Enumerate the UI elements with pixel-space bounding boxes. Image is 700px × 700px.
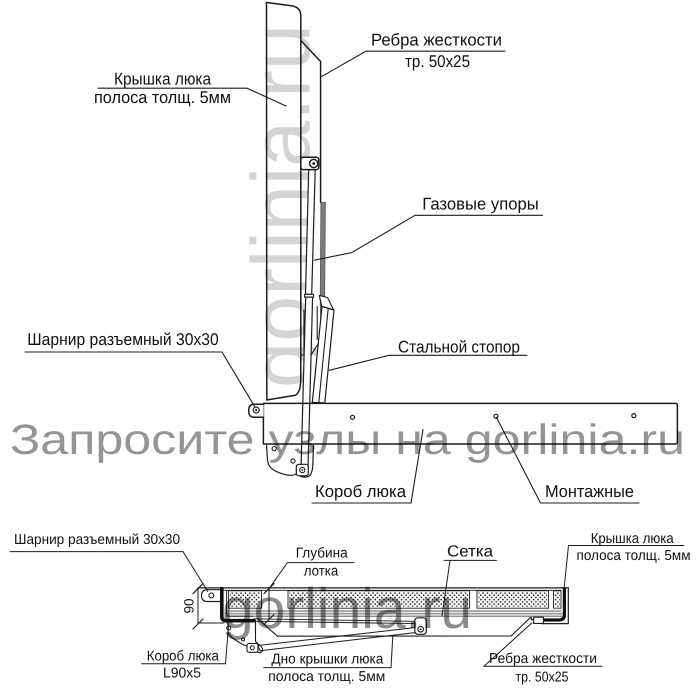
svg-text:gorlinia.ru: gorlinia.ru	[222, 577, 472, 641]
svg-text:полоса толщ. 5мм: полоса толщ. 5мм	[94, 88, 231, 107]
svg-text:Шарнир разъемный 30х30: Шарнир разъемный 30х30	[27, 330, 219, 349]
svg-text:Монтажные: Монтажные	[545, 482, 634, 501]
svg-text:90: 90	[182, 598, 197, 613]
svg-text:Короб люка: Короб люка	[315, 482, 407, 501]
svg-text:Шарнир разъемный 30х30: Шарнир разъемный 30х30	[14, 532, 180, 548]
svg-text:Газовые упоры: Газовые упоры	[422, 195, 539, 214]
svg-text:Стальной стопор: Стальной стопор	[398, 338, 520, 357]
svg-text:тр. 50х25: тр. 50х25	[516, 670, 569, 686]
svg-text:Короб люка: Короб люка	[147, 649, 219, 665]
svg-text:полоса толщ. 5мм: полоса толщ. 5мм	[268, 669, 385, 685]
svg-text:Крышка люка: Крышка люка	[591, 531, 674, 547]
svg-text:Глубина: Глубина	[296, 546, 348, 562]
svg-text:Ребра жесткости: Ребра жесткости	[489, 651, 597, 667]
svg-text:Дно крышки люка: Дно крышки люка	[271, 651, 383, 667]
svg-text:Сетка: Сетка	[447, 544, 493, 561]
svg-text:тр. 50х25: тр. 50х25	[405, 52, 470, 71]
svg-text:Крышка люка: Крышка люка	[114, 70, 211, 89]
svg-text:L90x5: L90x5	[163, 666, 201, 682]
svg-text:полоса толщ. 5мм: полоса толщ. 5мм	[577, 548, 691, 564]
svg-text:Запросите узлы на gorlinia.ru: Запросите узлы на gorlinia.ru	[10, 417, 685, 464]
svg-text:Ребра жесткости: Ребра жесткости	[371, 31, 502, 50]
